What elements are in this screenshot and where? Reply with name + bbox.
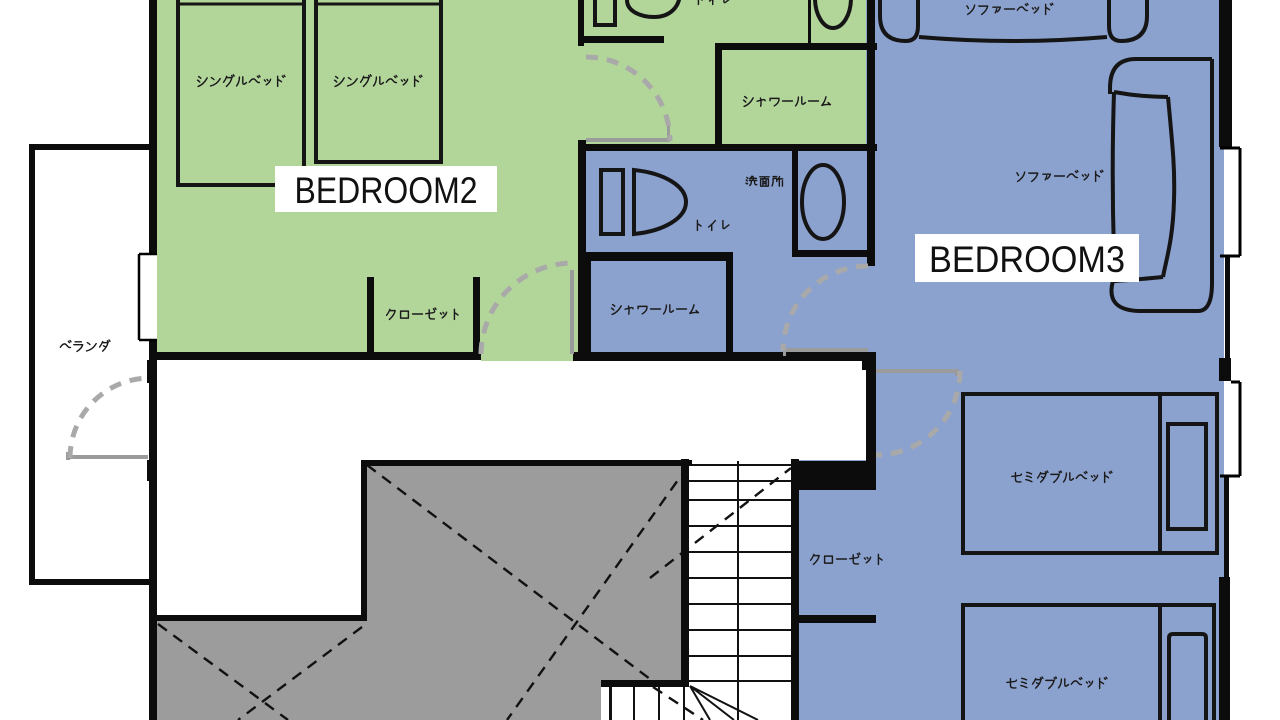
svg-text:BEDROOM3: BEDROOM3 (929, 239, 1125, 280)
svg-text:BEDROOM2: BEDROOM2 (295, 170, 478, 211)
